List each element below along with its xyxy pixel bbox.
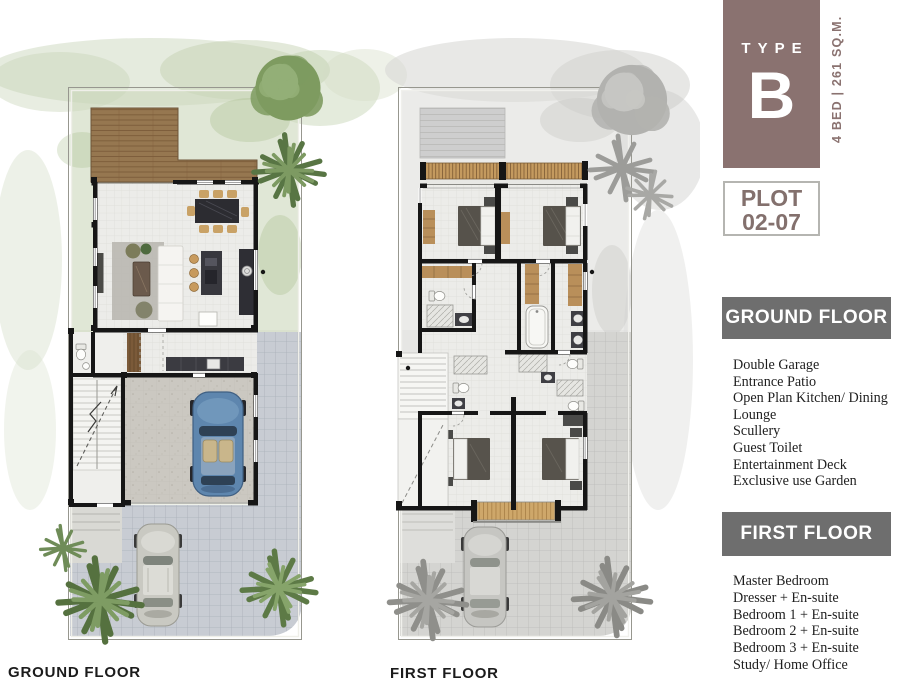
legend-item-first-1: Dresser + En-suite (733, 590, 859, 607)
plot-number: 02-07 (725, 210, 818, 234)
legend-item-first-4: Bedroom 3 + En-suite (733, 640, 859, 657)
legend-item-ground-6: Entertainment Deck (733, 457, 888, 474)
plot-number-box: PLOT 02-07 (723, 181, 820, 236)
legend-item-ground-1: Entrance Patio (733, 374, 888, 391)
ground-floor-caption: GROUND FLOOR (8, 664, 141, 681)
ground-floor-plan (0, 38, 407, 642)
legend-item-ground-2: Open Plan Kitchen/ Dining (733, 390, 888, 407)
type-badge: TYPE B (723, 0, 820, 168)
legend-item-first-3: Bedroom 2 + En-suite (733, 623, 859, 640)
first-floor-caption: FIRST FLOOR (390, 665, 499, 682)
first-floor-legend-header: FIRST FLOOR (722, 512, 891, 556)
legend-item-ground-0: Double Garage (733, 357, 888, 374)
first-floor-plan (385, 38, 700, 640)
type-letter: B (723, 61, 820, 130)
legend-item-ground-4: Scullery (733, 423, 888, 440)
legend-item-ground-5: Guest Toilet (733, 440, 888, 457)
brochure-page: TYPE B 4 BED | 261 SQ.M. PLOT 02-07 GROU… (0, 0, 900, 691)
legend-item-first-0: Master Bedroom (733, 573, 859, 590)
ground-floor-legend-header: GROUND FLOOR (722, 297, 891, 339)
grey-car-illustration (461, 527, 509, 627)
first-floor-legend-list: Master Bedroom Dresser + En-suite Bedroo… (733, 573, 859, 674)
legend-item-first-5: Study/ Home Office (733, 657, 859, 674)
silver-car-illustration (134, 524, 182, 626)
floor-plans-graphic (0, 0, 700, 691)
plot-word: PLOT (725, 186, 818, 210)
grey-deck-below (420, 108, 505, 158)
blue-car-illustration (190, 392, 246, 496)
legend-item-ground-3: Lounge (733, 407, 888, 424)
ground-floor-legend-list: Double Garage Entrance Patio Open Plan K… (733, 357, 888, 490)
legend-item-ground-7: Exclusive use Garden (733, 473, 888, 490)
legend-item-first-2: Bedroom 1 + En-suite (733, 607, 859, 624)
spec-vertical-text: 4 BED | 261 SQ.M. (830, 23, 846, 143)
type-label: TYPE (723, 40, 820, 57)
